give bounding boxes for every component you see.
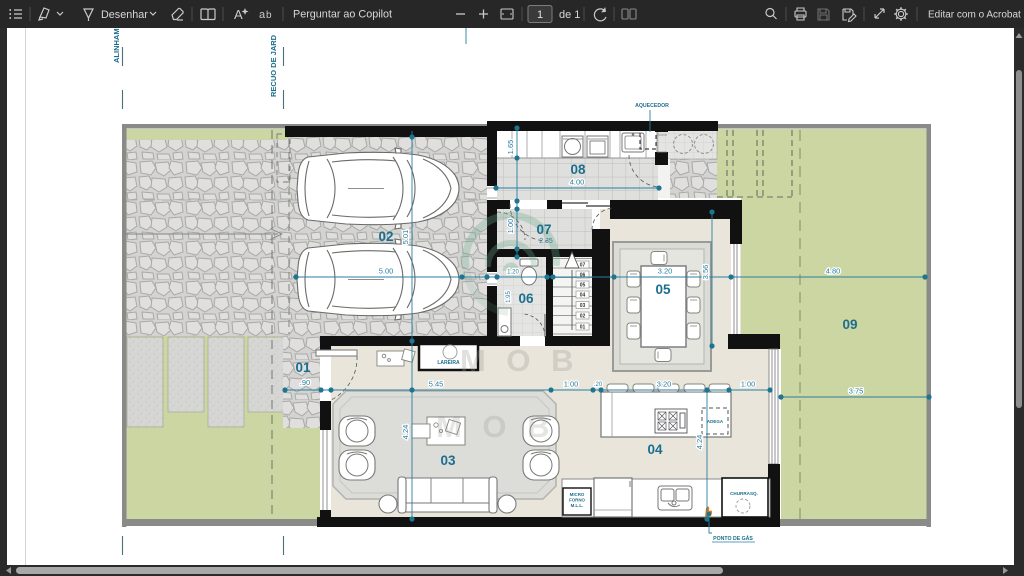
svg-text:3.56: 3.56 (701, 265, 710, 280)
svg-text:3.20: 3.20 (657, 380, 672, 389)
svg-text:1.95: 1.95 (506, 291, 512, 303)
svg-text:4.24: 4.24 (401, 425, 410, 440)
svg-text:03: 03 (440, 453, 456, 468)
svg-text:01: 01 (580, 325, 586, 331)
svg-text:ALINHAM: ALINHAM (112, 28, 121, 63)
svg-text:3.20: 3.20 (658, 267, 673, 276)
svg-text:09: 09 (842, 317, 857, 332)
svg-text:5.01: 5.01 (401, 230, 410, 245)
svg-text:1.65: 1.65 (506, 140, 515, 155)
svg-text:.90: .90 (300, 378, 310, 387)
svg-text:1: 1 (537, 9, 543, 21)
svg-text:08: 08 (570, 162, 586, 177)
svg-text:M O B: M O B (460, 343, 580, 378)
svg-text:1.00: 1.00 (506, 219, 515, 234)
svg-text:02: 02 (378, 229, 393, 244)
svg-text:02: 02 (580, 314, 586, 320)
svg-text:05: 05 (655, 282, 671, 297)
svg-text:04: 04 (647, 442, 663, 457)
svg-text:Perguntar ao Copilot: Perguntar ao Copilot (293, 9, 392, 21)
svg-text:LAREIRA: LAREIRA (437, 360, 460, 366)
svg-text:FORNO: FORNO (569, 498, 585, 503)
svg-text:4.24: 4.24 (695, 435, 704, 450)
svg-text:RECUO DE JARD: RECUO DE JARD (269, 34, 278, 97)
svg-text:ADEGA: ADEGA (707, 419, 724, 424)
svg-text:07: 07 (536, 222, 551, 237)
svg-text:5.45: 5.45 (429, 380, 444, 389)
svg-text:Desenhar: Desenhar (101, 9, 148, 21)
svg-text:01: 01 (295, 360, 311, 375)
svg-text:PONTO DE GÁS: PONTO DE GÁS (713, 535, 753, 542)
svg-text:2.35: 2.35 (539, 238, 553, 245)
svg-text:de 1: de 1 (559, 9, 580, 21)
svg-text:07: 07 (580, 263, 586, 269)
svg-text:1.00: 1.00 (741, 380, 756, 389)
svg-text:03: 03 (580, 303, 586, 309)
svg-text:a: a (259, 9, 266, 21)
svg-text:4.00: 4.00 (570, 178, 585, 187)
svg-text:MICRO: MICRO (570, 492, 585, 497)
svg-text:.20: .20 (594, 382, 603, 388)
svg-text:A: A (234, 7, 243, 22)
svg-text:Editar com o Acrobat: Editar com o Acrobat (928, 10, 1021, 21)
svg-text:1.20: 1.20 (507, 270, 519, 276)
svg-text:3.75: 3.75 (849, 387, 864, 396)
svg-text:4.80: 4.80 (826, 267, 841, 276)
svg-text:CHURRASQ.: CHURRASQ. (730, 491, 758, 496)
svg-text:b: b (266, 10, 272, 21)
svg-text:5.00: 5.00 (379, 267, 394, 276)
svg-text:04: 04 (580, 293, 586, 299)
svg-text:1.00: 1.00 (564, 380, 579, 389)
svg-text:M.L.L.: M.L.L. (571, 503, 584, 508)
svg-text:AQUECEDOR: AQUECEDOR (635, 103, 669, 109)
svg-text:06: 06 (518, 291, 534, 306)
svg-text:06: 06 (580, 273, 586, 279)
svg-text:05: 05 (580, 283, 586, 289)
svg-text:M O B: M O B (436, 409, 556, 444)
